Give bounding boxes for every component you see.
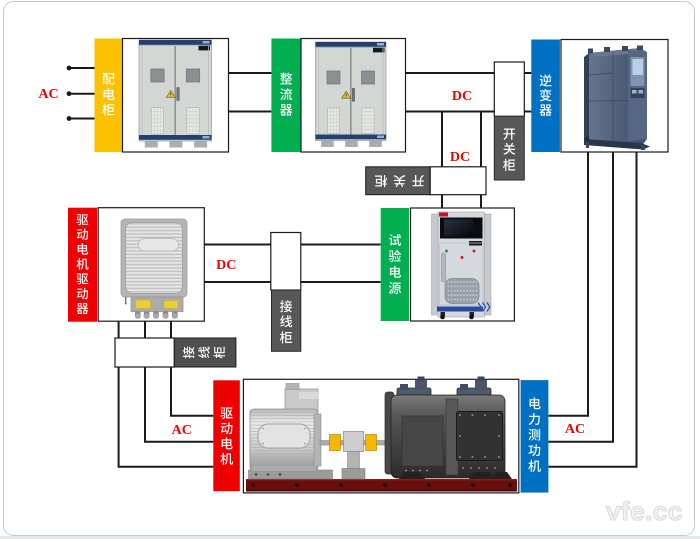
- svg-text:AC: AC: [38, 87, 58, 102]
- svg-text:DC: DC: [452, 89, 472, 104]
- svg-text:!: !: [170, 93, 172, 99]
- svg-text:DC: DC: [216, 258, 236, 273]
- svg-text:DC: DC: [450, 150, 470, 165]
- svg-text:AC: AC: [565, 422, 585, 437]
- svg-text:AC: AC: [172, 423, 192, 438]
- svg-text:!: !: [345, 94, 347, 100]
- svg-text:vfe.cc: vfe.cc: [606, 496, 683, 526]
